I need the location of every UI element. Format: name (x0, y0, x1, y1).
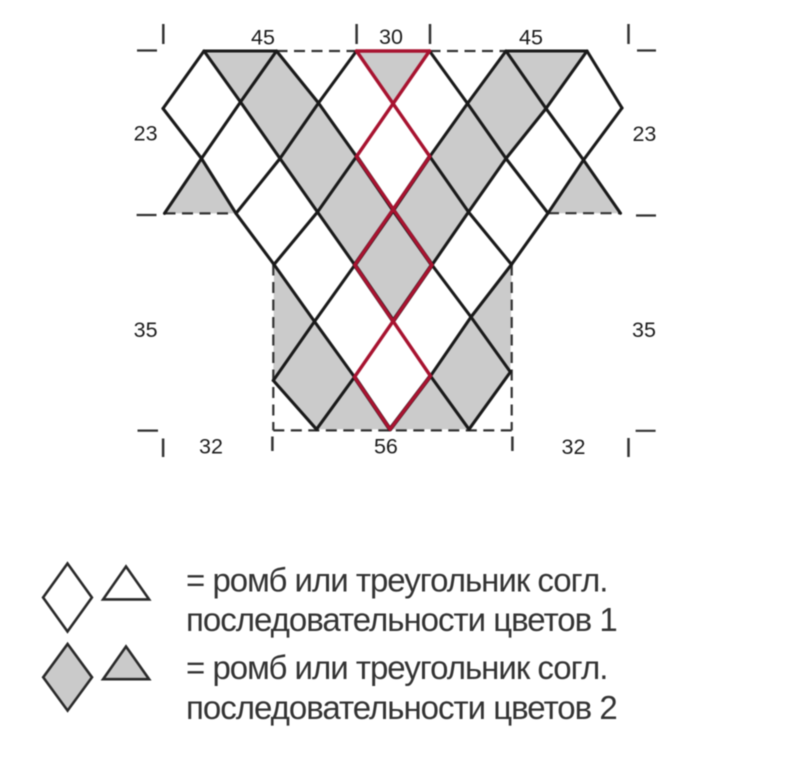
svg-text:последовательности цветов 1: последовательности цветов 1 (186, 601, 617, 638)
svg-text:= ромб или треугольник согл.: = ромб или треугольник согл. (186, 649, 607, 686)
svg-text:45: 45 (519, 26, 543, 50)
svg-text:32: 32 (562, 435, 586, 459)
svg-text:45: 45 (251, 26, 275, 50)
svg-text:30: 30 (379, 25, 403, 49)
svg-text:35: 35 (134, 318, 158, 342)
svg-text:23: 23 (632, 122, 656, 146)
svg-text:35: 35 (632, 318, 656, 342)
svg-text:56: 56 (374, 434, 398, 458)
svg-text:= ромб или треугольник согл.: = ромб или треугольник согл. (186, 561, 607, 598)
svg-text:последовательности цветов 2: последовательности цветов 2 (186, 689, 617, 726)
svg-text:32: 32 (199, 435, 223, 459)
svg-text:23: 23 (134, 122, 158, 146)
